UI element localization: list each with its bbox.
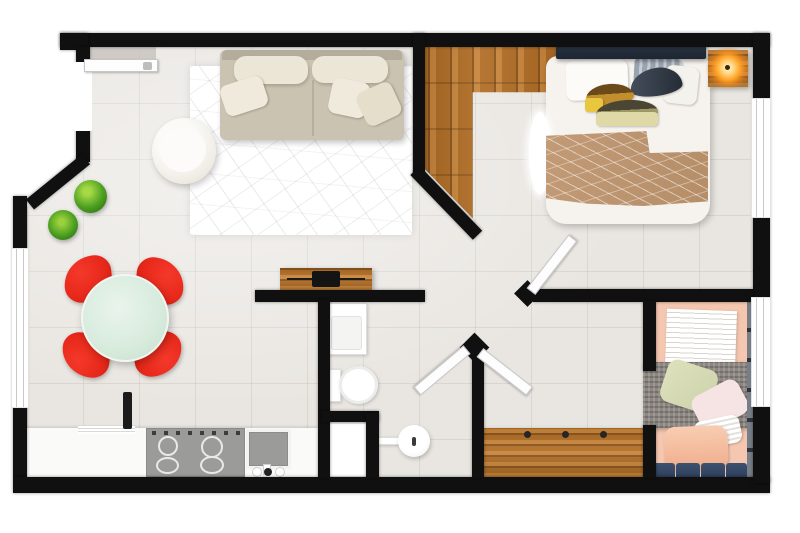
counter-dark-utensil — [123, 392, 132, 429]
sink-faucet-center — [264, 468, 272, 476]
wall-closet-right — [366, 413, 379, 478]
wall-bedroom2-left-upper — [643, 301, 656, 371]
wall-bathroom-left — [318, 300, 330, 478]
floor-plan-canvas — [0, 0, 800, 533]
plant-1 — [74, 180, 107, 213]
shower-washer-unit — [326, 423, 367, 477]
bench-knob-1 — [524, 431, 531, 438]
outside-area-top-left — [27, 47, 78, 161]
bench-knob-3 — [600, 431, 607, 438]
sofa — [220, 50, 404, 140]
vanity-basin — [331, 316, 362, 350]
wall-hall-center — [472, 348, 484, 478]
plant-2 — [48, 210, 78, 240]
bed1-pillow-pale-strip — [596, 112, 658, 126]
hallway-bench — [483, 428, 643, 477]
tv — [312, 271, 340, 287]
burner-4 — [200, 456, 224, 474]
wall-bathroom-top — [255, 290, 425, 302]
window-bedroom2 — [751, 297, 771, 407]
bed2 — [643, 300, 757, 480]
toilet-bowl — [339, 366, 378, 404]
cooktop-knobs — [152, 431, 240, 435]
entry-door-leaf — [84, 59, 158, 72]
burner-2 — [201, 436, 223, 458]
nightstand-lamp-base — [725, 65, 730, 70]
burner-3 — [156, 457, 179, 474]
sofa-seat-seam — [312, 80, 314, 136]
entry-doorway — [74, 62, 92, 131]
sink-faucet-knob-right — [275, 467, 285, 477]
dining-table — [81, 274, 169, 362]
sink-faucet-knob-left — [252, 467, 262, 477]
cooktop — [146, 428, 245, 477]
wall-living-bedroom-divider — [413, 33, 425, 173]
wall-bottom — [13, 477, 770, 493]
burner-1 — [158, 436, 178, 456]
basin-faucet — [412, 437, 416, 446]
entry-door-handle — [143, 62, 152, 70]
bench-knob-2 — [562, 431, 569, 438]
window-left — [11, 248, 29, 408]
window-bedroom1 — [751, 98, 771, 218]
pedestal-basin-arm — [377, 437, 400, 445]
wall-bedroom2-left-lower — [643, 425, 656, 478]
kitchen-sink — [246, 429, 291, 469]
